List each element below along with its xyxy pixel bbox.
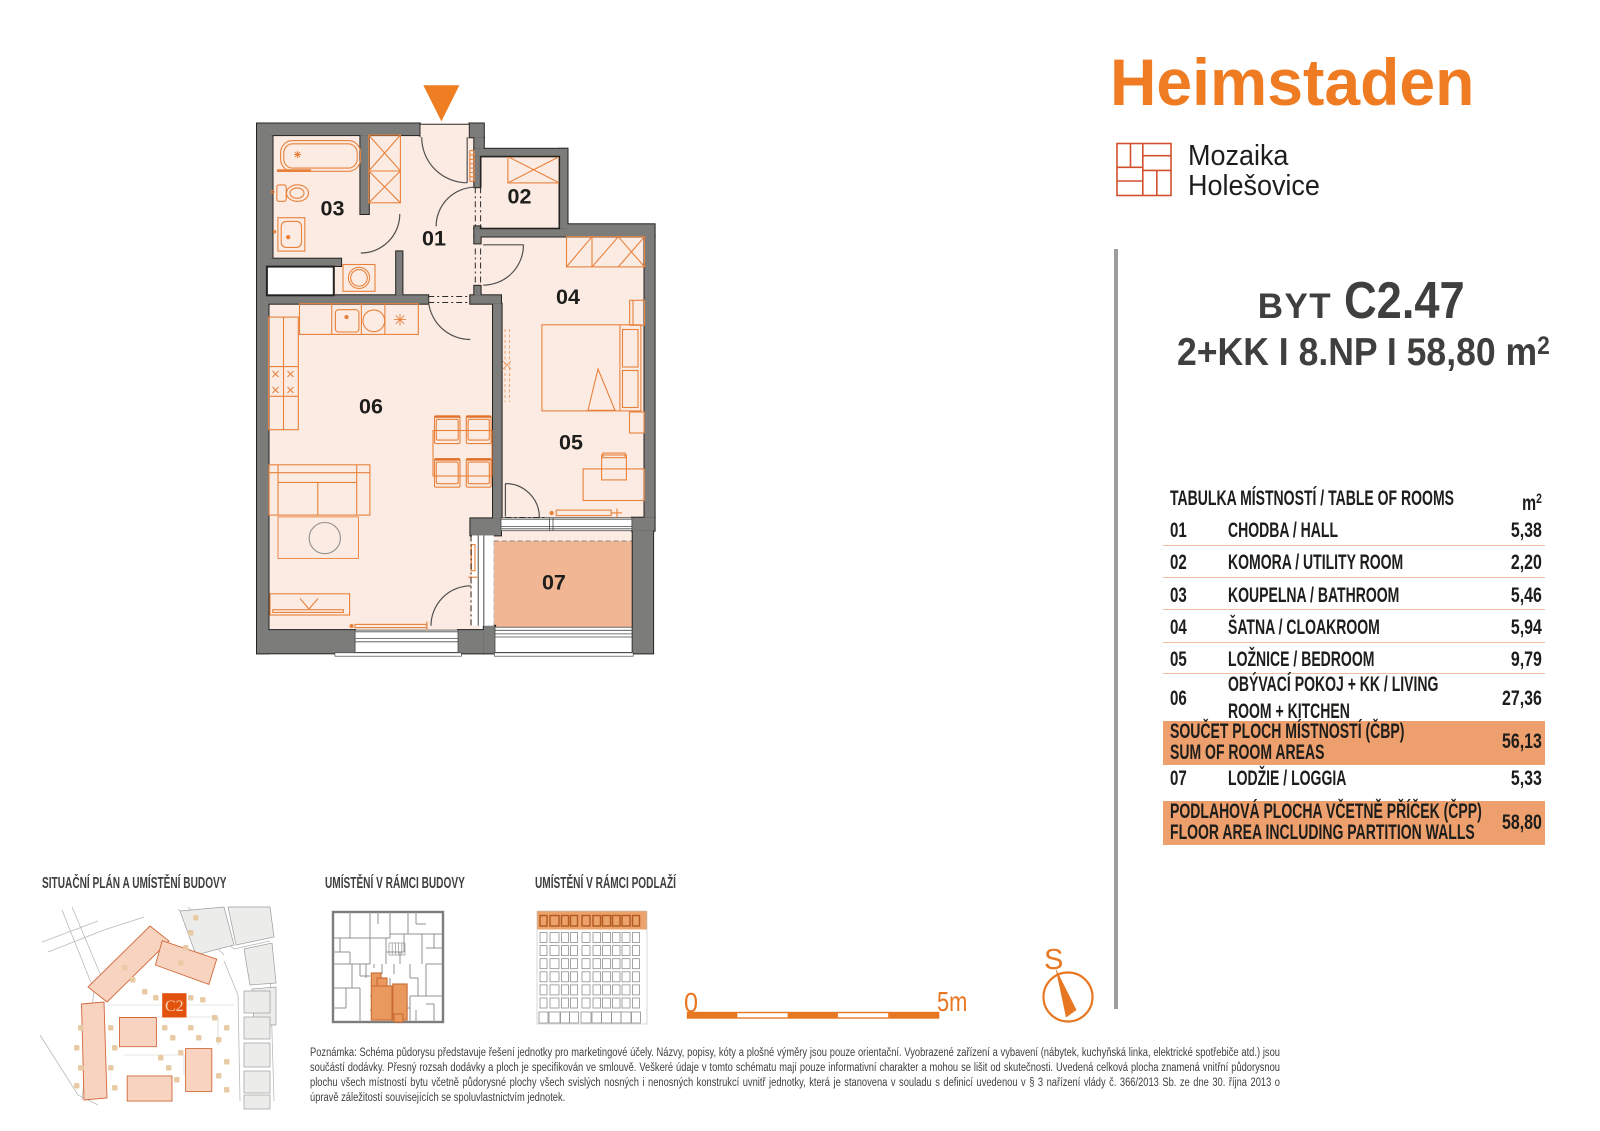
svg-text:C2: C2 [165,998,184,1015]
svg-text:S: S [1044,944,1063,976]
